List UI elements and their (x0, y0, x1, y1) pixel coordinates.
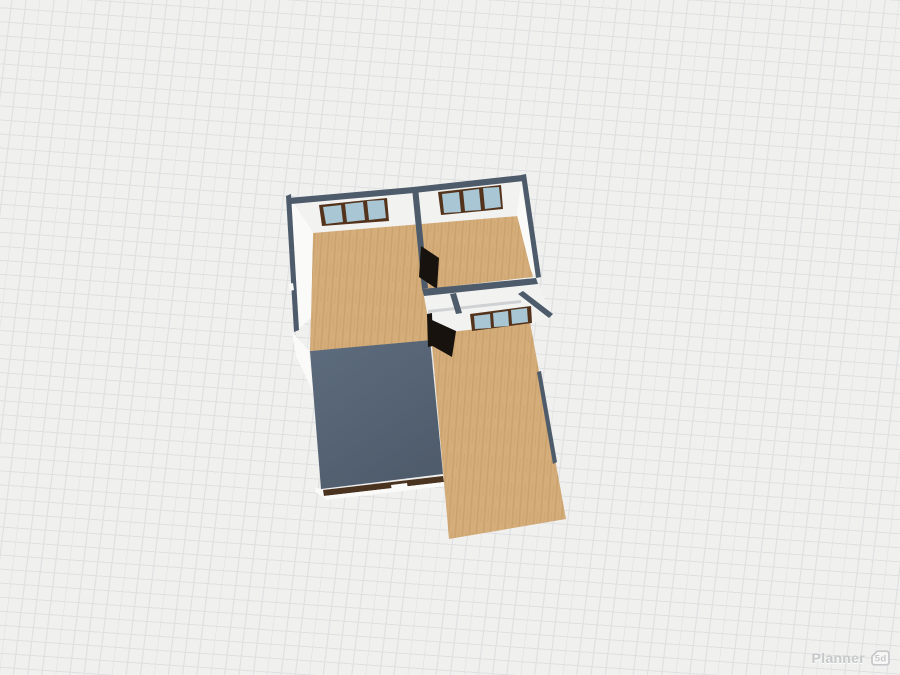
planner5d-3d-viewport[interactable]: Planner 5d (0, 0, 900, 675)
house (286, 174, 566, 539)
house-model (0, 0, 900, 675)
watermark-badge-text: 5d (875, 654, 887, 665)
planner5d-logo-icon: 5d (868, 648, 893, 668)
watermark-brand-text: Planner (812, 650, 865, 666)
left-exterior-wall-wedge[interactable] (292, 332, 313, 392)
upper-left-room-floor[interactable] (310, 221, 432, 351)
planner5d-watermark: Planner 5d (812, 648, 893, 668)
roof-slab[interactable] (310, 339, 443, 489)
